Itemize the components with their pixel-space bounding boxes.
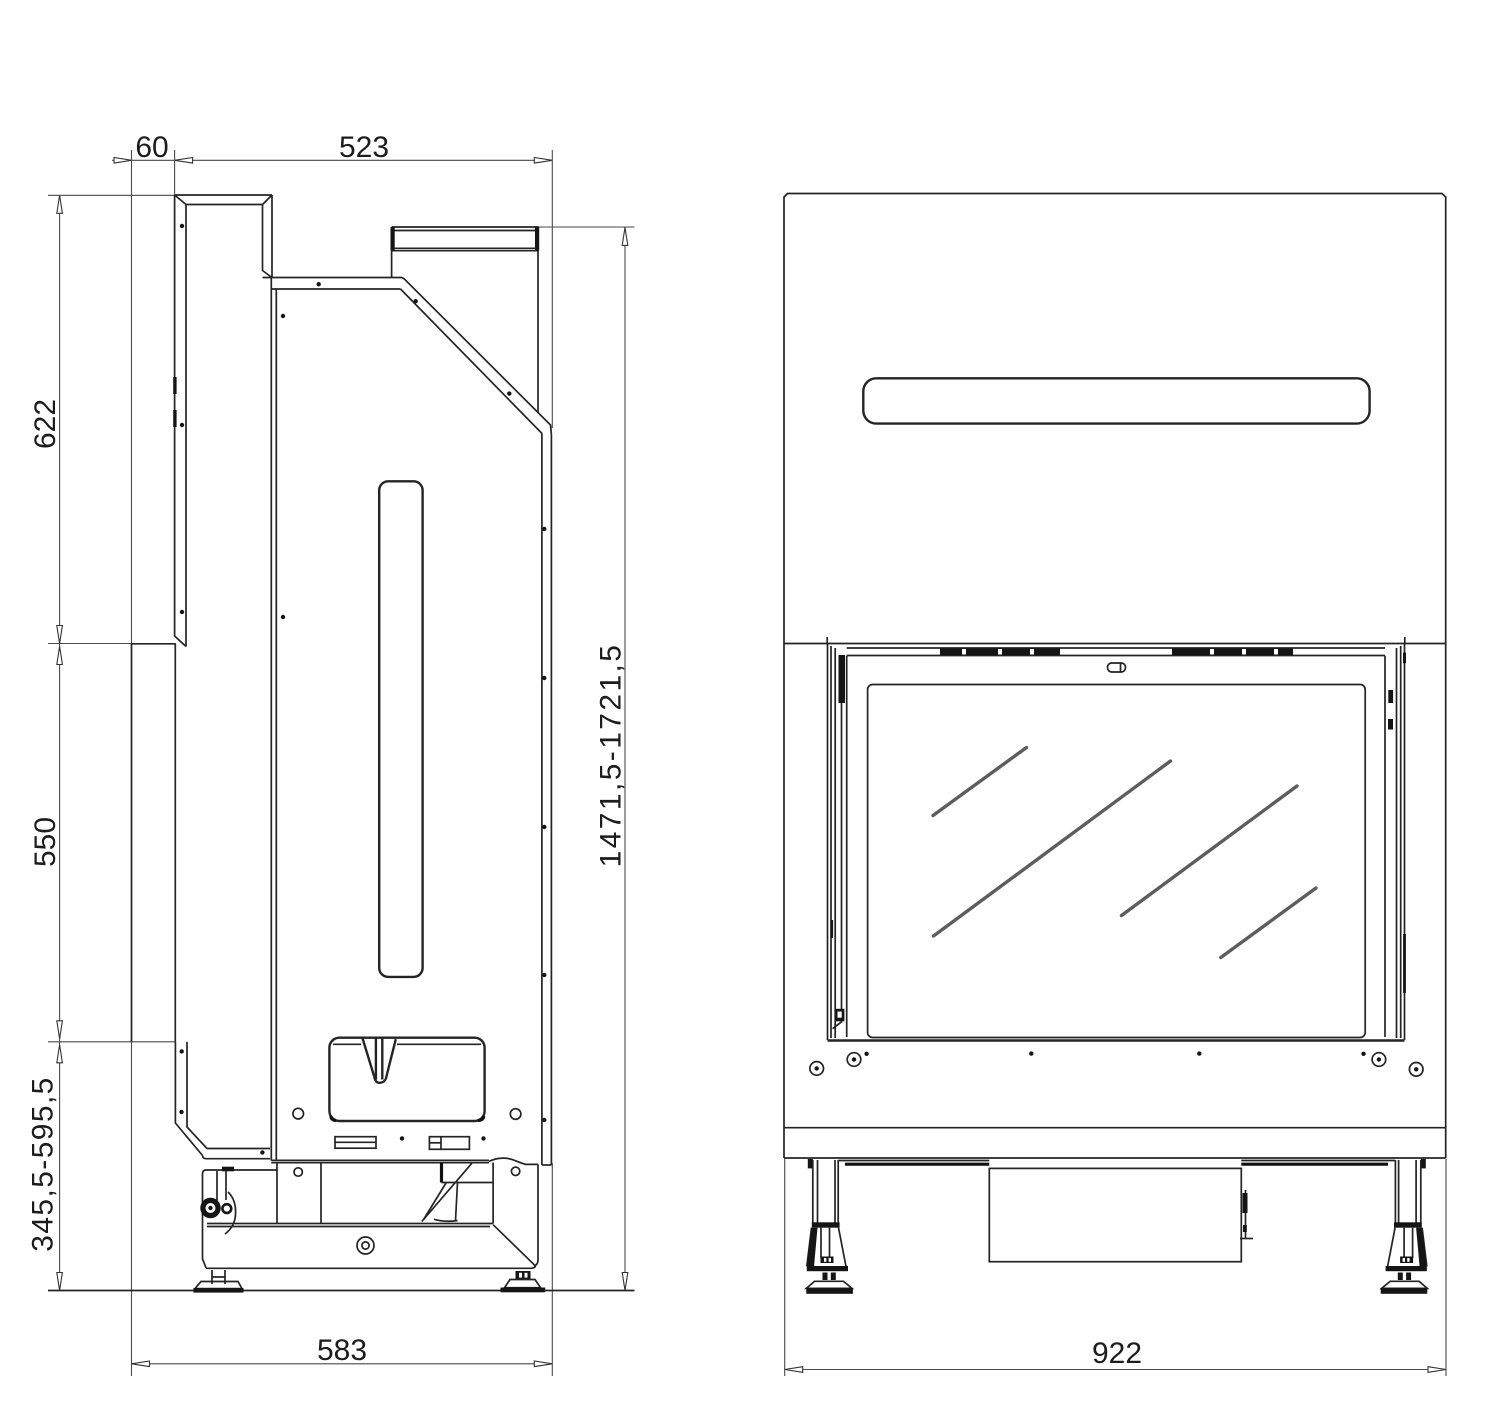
svg-text:345,5-595,5: 345,5-595,5 — [27, 1076, 60, 1252]
svg-text:922: 922 — [1092, 1337, 1142, 1370]
svg-text:523: 523 — [339, 131, 389, 164]
svg-text:622: 622 — [29, 399, 62, 449]
svg-text:60: 60 — [135, 131, 168, 164]
svg-text:1471,5-1721,5: 1471,5-1721,5 — [595, 643, 628, 868]
svg-text:583: 583 — [317, 1334, 367, 1367]
svg-text:550: 550 — [29, 817, 62, 867]
